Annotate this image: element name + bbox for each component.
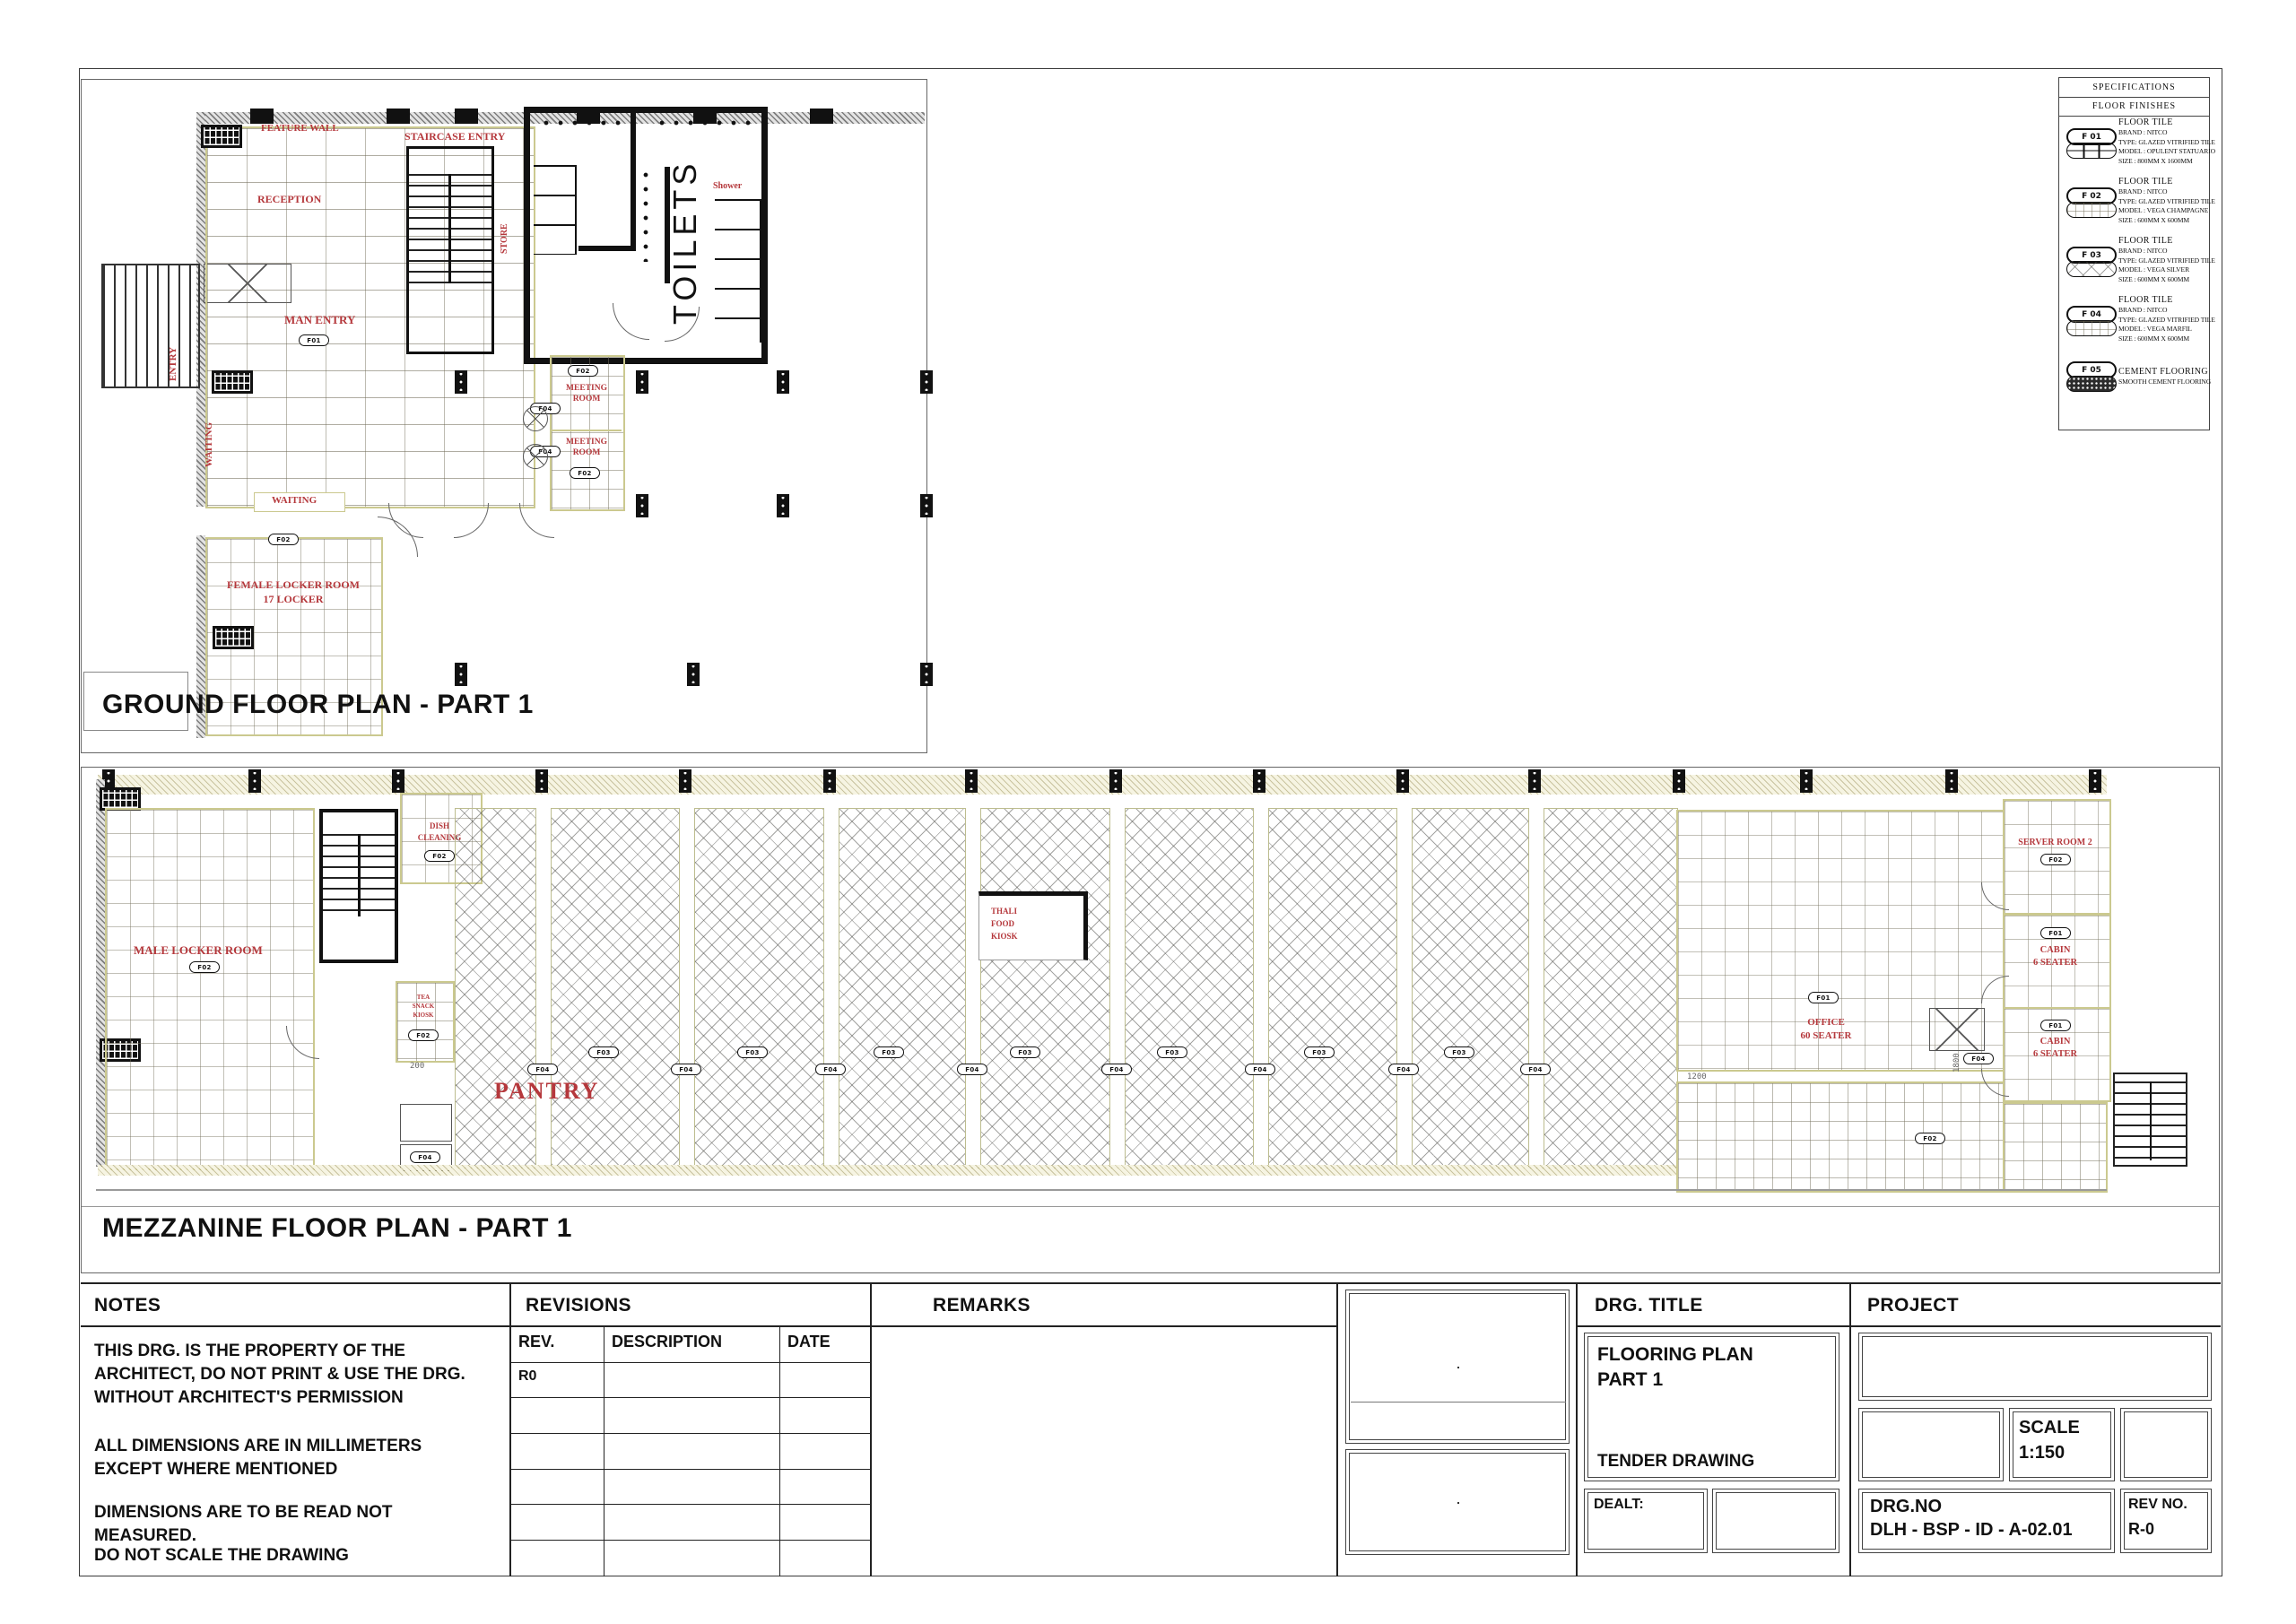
toilets-block: TOILETS Shower [524,107,768,364]
remarks-header: REMARKS [933,1295,1031,1316]
column-marker [777,494,789,517]
mezzanine-plan-title: MEZZANINE FLOOR PLAN - PART 1 [102,1213,572,1244]
waiting-label-h: WAITING [272,495,317,506]
man-entry-label: MAN ENTRY [284,313,355,327]
scale-value: 1:150 [2019,1443,2065,1463]
empty-box [2120,1408,2212,1481]
meeting-rooms [550,355,625,511]
column-marker [777,370,789,394]
empty-box [1712,1489,1839,1553]
open-hall [455,808,1678,1168]
column-marker [920,370,933,394]
dim-1800: 1800 [1952,1037,1961,1073]
basin-column [638,163,648,262]
female-locker-label: FEMALE LOCKER ROOM [216,578,370,592]
column-marker [687,663,700,686]
spec-sample-grid-fine [2066,202,2117,218]
drg-title-line2: PART 1 [1597,1369,1663,1391]
column-block [212,370,253,394]
rev-col-header: DATE [780,1327,870,1363]
note-paragraph: DO NOT SCALE THE DRAWING [94,1544,493,1568]
server-room-label: SERVER ROOM 2 [2005,838,2106,847]
female-locker-count: 17 LOCKER [216,593,370,606]
meeting-room-label: MEETING ROOM [555,383,618,404]
specifications-box: SPECIFICATIONS FLOOR FINISHES F 01 FLOOR… [2058,77,2210,430]
drg-no-box: DRG.NO DLH - BSP - ID - A-02.01 [1858,1489,2115,1553]
revisions-header: REVISIONS [526,1295,631,1316]
column-block [201,125,242,148]
rev-cell: R0 [511,1363,604,1399]
column-block [213,626,254,649]
right-stair [2113,1073,2187,1167]
floor-finish-tag: F02 [570,467,600,479]
meeting-room-label: MEETING ROOM [555,437,618,458]
drg-title-subtitle: TENDER DRAWING [1597,1452,1754,1472]
stamp-box [1345,1290,1570,1444]
toilets-label: TOILETS [666,133,704,325]
drg-title-header: DRG. TITLE [1595,1295,1703,1316]
rev-no-label: REV NO. [2128,1497,2187,1513]
lower-band [1676,1081,2005,1193]
note-paragraph: THIS DRG. IS THE PROPERTY OF THE ARCHITE… [94,1340,493,1410]
male-locker-label: MALE LOCKER ROOM [134,943,263,958]
ground-floor-plan: ENTRY FEATURE WALL RECEPTION STAIRCASE E… [81,79,927,753]
column-marker [636,370,648,394]
door [454,503,489,538]
column-marker [636,494,648,517]
project-header: PROJECT [1867,1295,1959,1316]
column-marker [455,663,467,686]
floor-finish-tag: F01 [299,334,329,346]
staircase [406,146,494,354]
drg-no-value: DLH - BSP - ID - A-02.01 [1870,1520,2073,1541]
note-paragraph: ALL DIMENSIONS ARE IN MILLIMETERS EXCEPT… [94,1435,493,1481]
spec-title: SPECIFICATIONS [2059,78,2209,98]
wc-stalls [715,199,761,343]
feature-wall-label: FEATURE WALL [261,123,339,134]
rev-no-value: R-0 [2128,1520,2154,1539]
spec-sample-speckle [2066,376,2117,392]
note-paragraph: DIMENSIONS ARE TO BE READ NOT MEASURED. [94,1501,493,1548]
floor-finish-tag: F02 [189,961,220,973]
entry-stair [101,264,200,388]
spec-sample-grid-large [2066,143,2117,159]
column-marker [920,494,933,517]
spiral-stair [523,444,548,469]
urinal-row [650,115,756,126]
spec-subtitle: FLOOR FINISHES [2059,97,2209,117]
wc-stalls [534,165,577,255]
cabin-label: CABIN [2005,945,2106,955]
entry-label: ENTRY [168,306,178,381]
drg-title-line1: FLOORING PLAN [1597,1344,1753,1366]
reception-label: RECEPTION [257,193,321,206]
door [519,503,554,538]
column-marker [455,370,467,394]
shower-label: Shower [713,181,742,191]
dim-1200: 1200 [1687,1073,1707,1081]
dealt-label: DEALT: [1594,1497,1644,1513]
rev-col-header: REV. [511,1327,604,1363]
rev-no-box: REV NO. R-0 [2120,1489,2212,1553]
empty-box [1858,1408,2004,1481]
ground-plan-title: GROUND FLOOR PLAN - PART 1 [102,690,534,720]
floor-finish-tag: F04 [410,1151,440,1163]
dim-200: 200 [410,1062,424,1071]
floor-finish-tag: F02 [408,1029,439,1041]
dealt-box: DEALT: [1584,1489,1708,1553]
spec-sample-crosshatch [2066,261,2117,277]
column-marker [920,663,933,686]
drg-title-box: FLOORING PLAN PART 1 TENDER DRAWING [1584,1333,1839,1481]
scale-box: SCALE 1:150 [2009,1408,2115,1481]
male-locker-room [105,808,315,1170]
mezz-stair [319,809,398,963]
urinal-row [535,115,628,126]
pantry-label: PANTRY [494,1078,600,1105]
floor-finish-tag: F02 [568,365,598,377]
stamp-box [1345,1449,1570,1555]
spec-sample-grid-fine [2066,320,2117,336]
notes-header: NOTES [94,1295,161,1316]
store-label: STORE [500,198,509,254]
revisions-table: REV. DESCRIPTION DATE R0 [511,1327,870,1576]
drg-no-label: DRG.NO [1870,1497,1942,1517]
waiting-label-v: WAITING [204,399,214,467]
floor-finish-tag: F02 [424,850,455,862]
staircase-entry-label: STAIRCASE ENTRY [404,130,505,143]
title-block: NOTES THIS DRG. IS THE PROPERTY OF THE A… [81,1282,2221,1575]
project-box [1858,1333,2212,1401]
office-label: OFFICE [1777,1017,1875,1028]
scale-label: SCALE [2019,1418,2080,1438]
rev-col-header: DESCRIPTION [604,1327,780,1363]
mezzanine-floor-plan: MALE LOCKER ROOM F02 DISH CLEANING F02 T… [81,767,2220,1273]
floor-finish-tag: F02 [268,534,299,545]
spiral-stair [523,406,548,431]
